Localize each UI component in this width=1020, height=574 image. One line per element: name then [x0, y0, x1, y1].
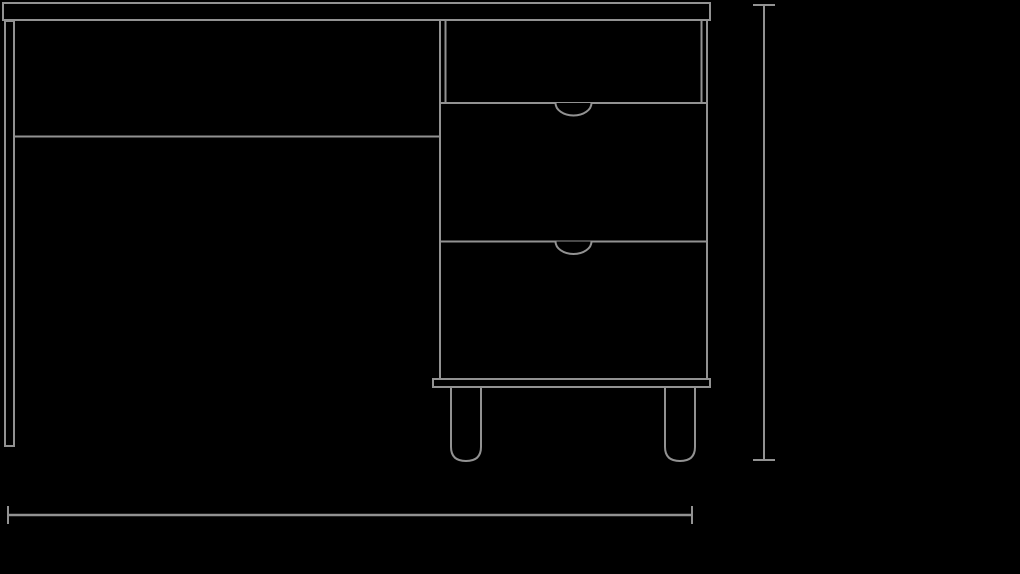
- desk-technical-drawing: Desk front elevation — technical line dr…: [0, 0, 1020, 574]
- plinth-rail: [433, 379, 710, 387]
- canvas-background: [0, 0, 1020, 574]
- desk-drawing-figure: Desk front elevation — technical line dr…: [0, 0, 1020, 574]
